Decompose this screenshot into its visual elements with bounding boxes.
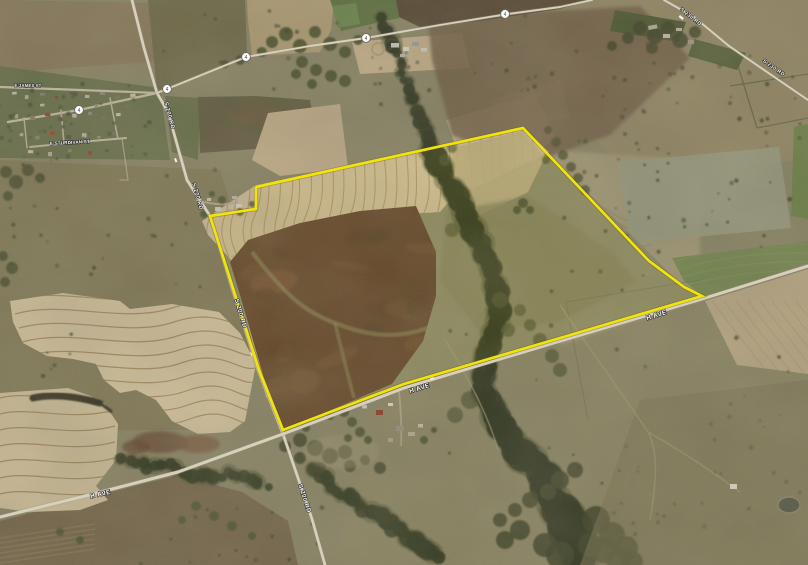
svg-text:4: 4	[166, 87, 169, 93]
svg-text:E JAMES ST: E JAMES ST	[15, 83, 42, 88]
svg-text:4: 4	[245, 55, 248, 61]
svg-text:4: 4	[365, 36, 368, 42]
svg-text:4: 4	[504, 12, 507, 18]
svg-text:4: 4	[78, 108, 81, 114]
